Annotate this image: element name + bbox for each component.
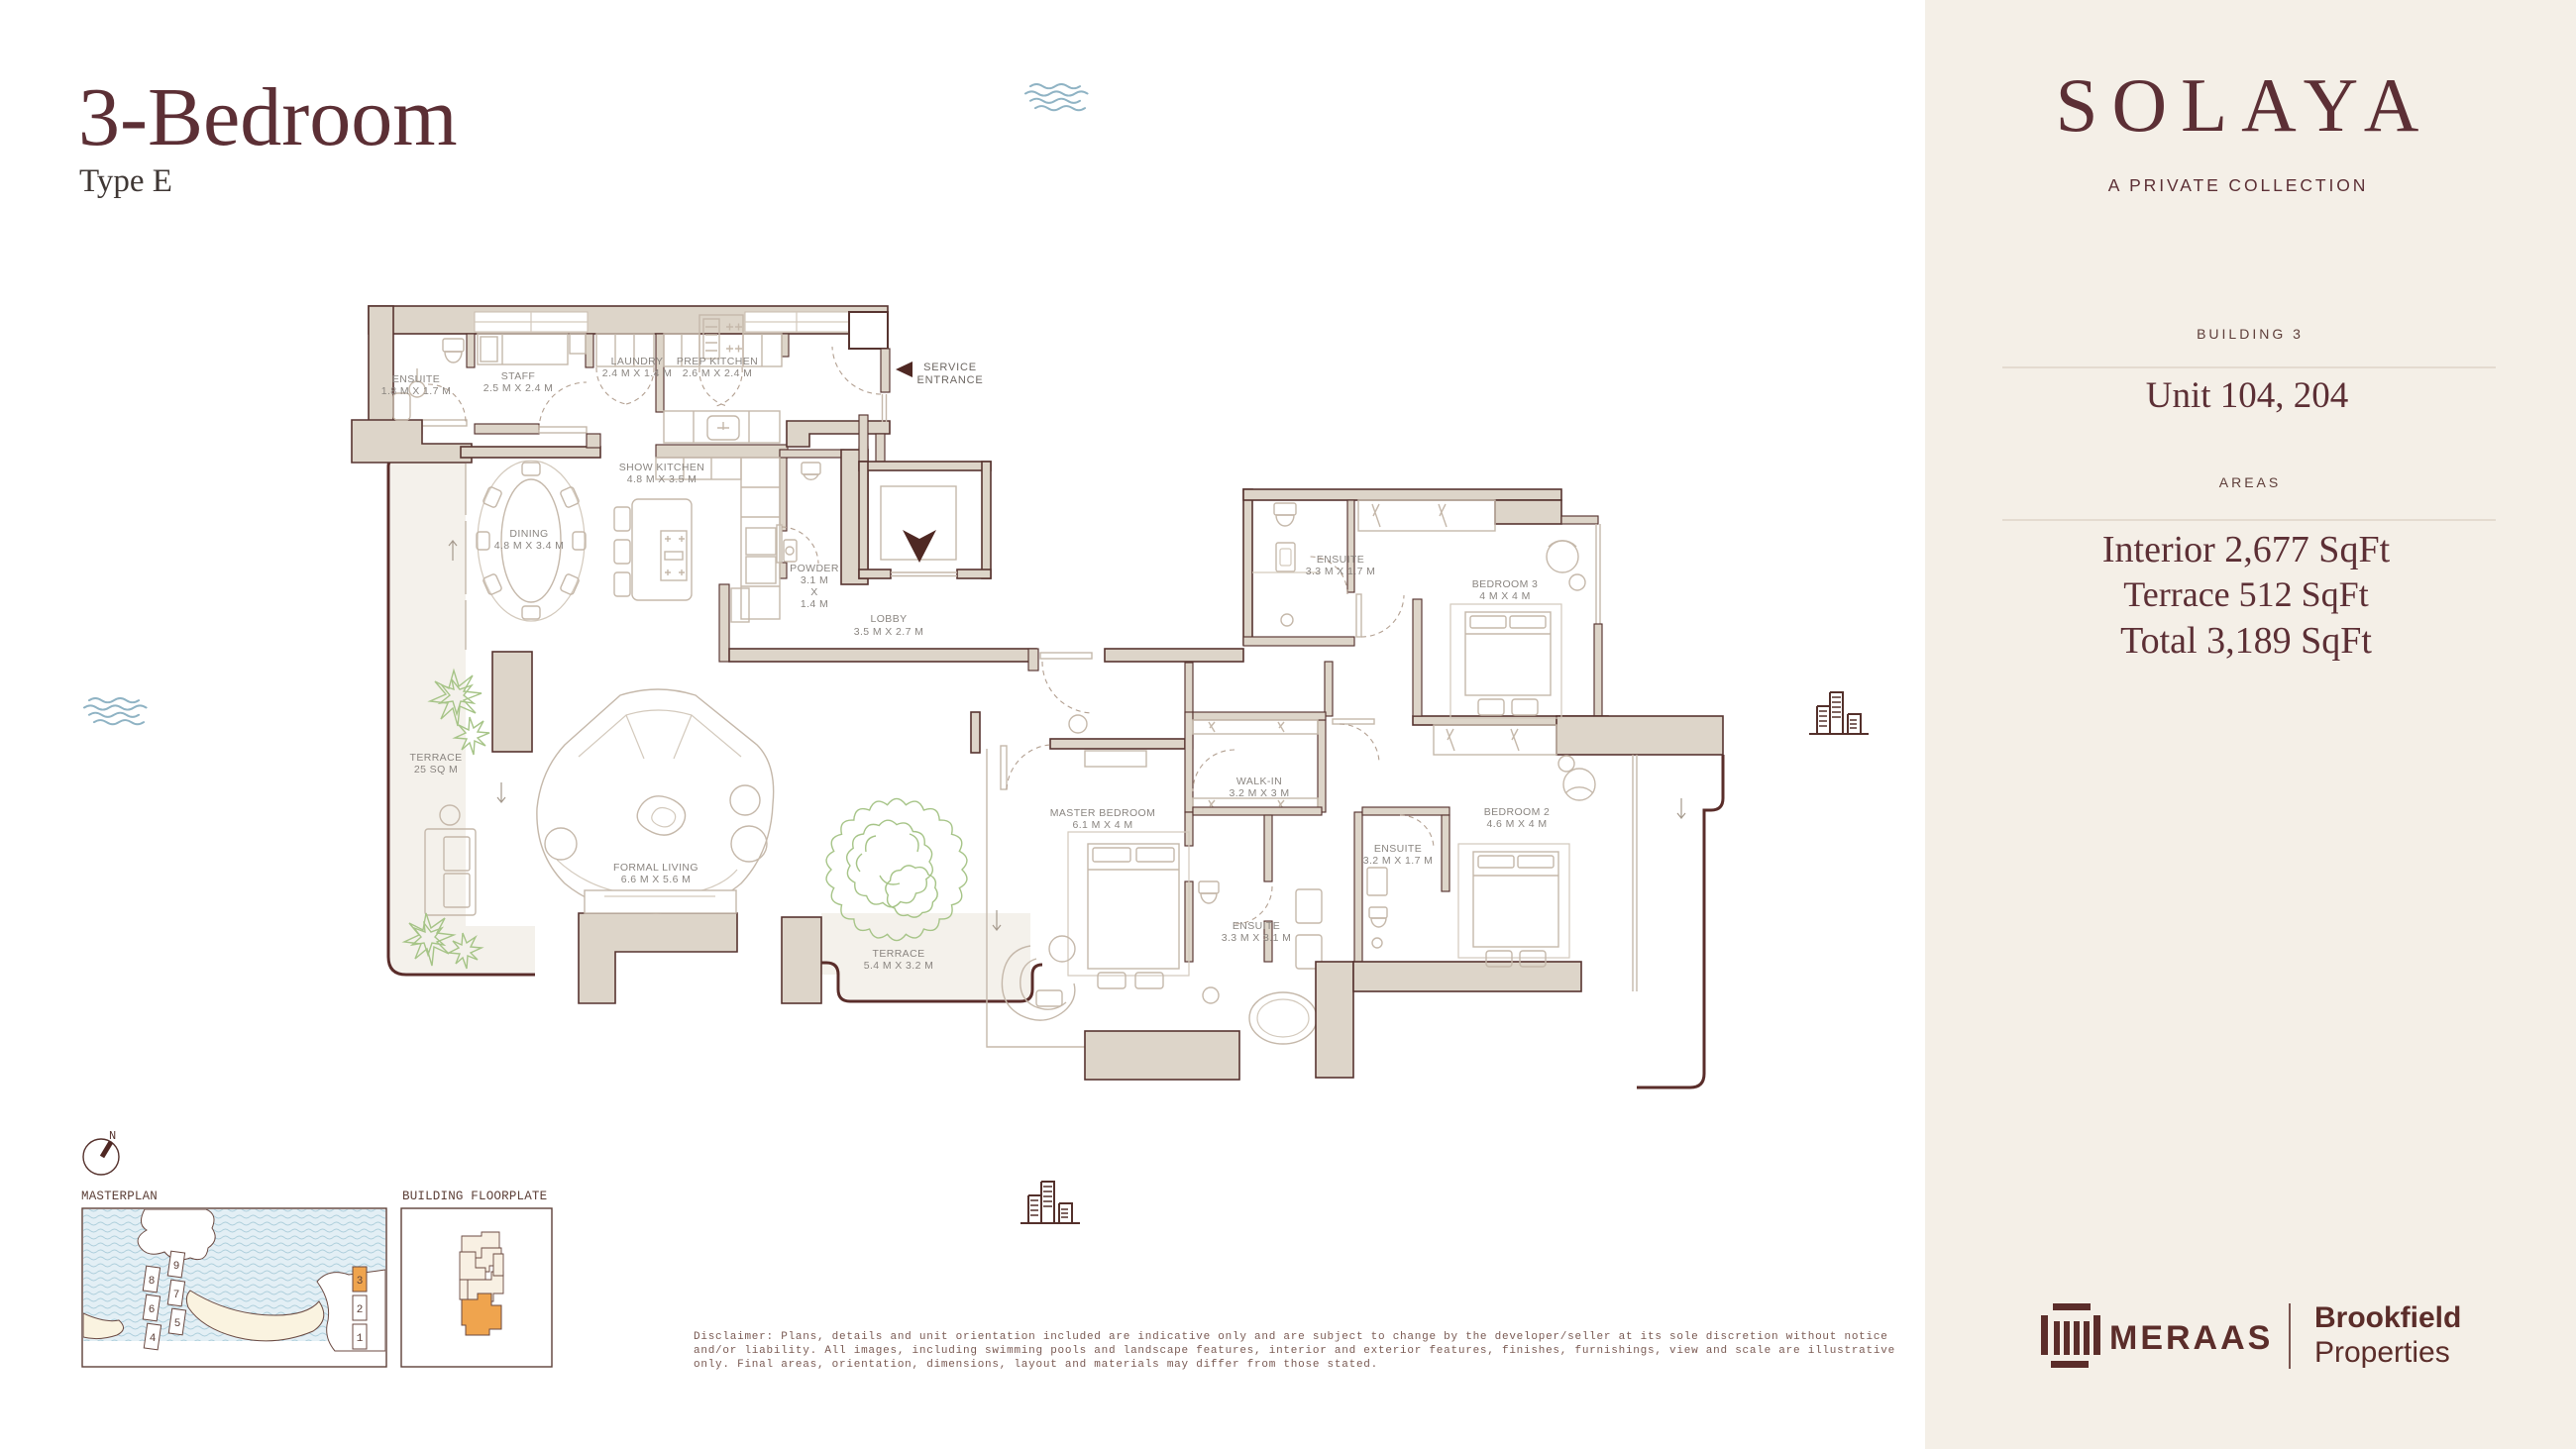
svg-text:2.5 M X 2.4 M: 2.5 M X 2.4 M — [483, 382, 554, 394]
svg-text:MERAAS: MERAAS — [2109, 1319, 2273, 1357]
svg-text:ENSUITE: ENSUITE — [1374, 843, 1422, 855]
svg-text:1.8 M X 1.7 M: 1.8 M X 1.7 M — [381, 385, 452, 397]
svg-text:Properties: Properties — [2314, 1336, 2450, 1369]
svg-text:3-Bedroom: 3-Bedroom — [78, 71, 458, 163]
svg-text:BEDROOM 2: BEDROOM 2 — [1484, 806, 1551, 818]
svg-text:DINING: DINING — [509, 528, 548, 540]
svg-text:3: 3 — [357, 1276, 364, 1288]
svg-text:3.1 M: 3.1 M — [801, 574, 828, 586]
svg-text:STAFF: STAFF — [501, 370, 535, 382]
svg-text:4 M X 4 M: 4 M X 4 M — [1479, 590, 1530, 602]
svg-text:2.6 M X 2.4 M: 2.6 M X 2.4 M — [683, 367, 753, 379]
svg-text:ENTRANCE: ENTRANCE — [917, 374, 984, 386]
svg-text:Terrace 512 SqFt: Terrace 512 SqFt — [2123, 574, 2368, 614]
svg-text:and/or liability. All images,: and/or liability. All images, including … — [694, 1345, 1895, 1357]
svg-text:4.8 M X 3.4 M: 4.8 M X 3.4 M — [494, 540, 565, 552]
svg-text:8: 8 — [149, 1276, 156, 1288]
svg-text:Brookfield: Brookfield — [2314, 1301, 2461, 1334]
svg-text:4.6 M X 4 M: 4.6 M X 4 M — [1486, 818, 1547, 830]
svg-text:3.3 M X 1.7 M: 3.3 M X 1.7 M — [1306, 566, 1376, 577]
svg-text:MASTER BEDROOM: MASTER BEDROOM — [1050, 807, 1156, 819]
svg-text:4.8 M X 3.5 M: 4.8 M X 3.5 M — [627, 473, 698, 485]
svg-text:3.2 M X 1.7 M: 3.2 M X 1.7 M — [1363, 855, 1434, 867]
svg-text:FORMAL LIVING: FORMAL LIVING — [613, 862, 698, 874]
svg-text:TERRACE: TERRACE — [873, 948, 925, 960]
svg-text:WALK-IN: WALK-IN — [1236, 776, 1282, 787]
svg-text:3.2 M X 3 M: 3.2 M X 3 M — [1229, 787, 1289, 799]
svg-text:2: 2 — [357, 1304, 364, 1316]
svg-text:6: 6 — [149, 1304, 156, 1316]
svg-text:7: 7 — [173, 1290, 180, 1301]
svg-text:Disclaimer: Plans, details and: Disclaimer: Plans, details and unit orie… — [694, 1331, 1888, 1343]
svg-text:1.4 M: 1.4 M — [801, 598, 828, 610]
svg-text:AREAS: AREAS — [2219, 474, 2281, 490]
svg-text:BUILDING FLOORPLATE: BUILDING FLOORPLATE — [402, 1190, 547, 1203]
svg-text:6.1 M X 4 M: 6.1 M X 4 M — [1072, 819, 1132, 831]
svg-text:N: N — [109, 1129, 116, 1143]
svg-text:Type E: Type E — [79, 163, 172, 199]
svg-text:9: 9 — [173, 1261, 180, 1273]
svg-text:3.5 M X 2.7 M: 3.5 M X 2.7 M — [854, 626, 924, 638]
svg-text:A PRIVATE COLLECTION: A PRIVATE COLLECTION — [2108, 175, 2369, 195]
svg-text:ENSUITE: ENSUITE — [392, 373, 440, 385]
svg-text:Unit 104, 204: Unit 104, 204 — [2146, 375, 2349, 416]
svg-text:Total 3,189 SqFt: Total 3,189 SqFt — [2120, 620, 2372, 662]
svg-text:ENSUITE: ENSUITE — [1317, 554, 1364, 566]
svg-text:3.3 M X 3.1 M: 3.3 M X 3.1 M — [1222, 932, 1292, 944]
svg-text:SOLAYA: SOLAYA — [2056, 62, 2433, 148]
svg-text:MASTERPLAN: MASTERPLAN — [81, 1190, 158, 1203]
svg-text:5.4 M X 3.2 M: 5.4 M X 3.2 M — [864, 960, 934, 972]
svg-text:SERVICE: SERVICE — [923, 362, 977, 373]
svg-text:Interior 2,677 SqFt: Interior 2,677 SqFt — [2102, 529, 2391, 570]
svg-text:ENSUITE: ENSUITE — [1233, 920, 1280, 932]
svg-text:BEDROOM 3: BEDROOM 3 — [1472, 578, 1539, 590]
svg-text:POWDER: POWDER — [790, 563, 839, 574]
svg-text:SHOW KITCHEN: SHOW KITCHEN — [619, 462, 704, 473]
svg-text:6.6 M X 5.6 M: 6.6 M X 5.6 M — [621, 874, 692, 885]
svg-text:BUILDING 3: BUILDING 3 — [2197, 326, 2304, 342]
svg-text:PREP KITCHEN: PREP KITCHEN — [677, 356, 758, 367]
svg-text:1: 1 — [357, 1333, 364, 1345]
svg-text:only. Final areas, orientation: only. Final areas, orientation, dimensio… — [694, 1359, 1378, 1371]
svg-text:TERRACE: TERRACE — [410, 752, 463, 764]
svg-text:X: X — [810, 586, 817, 598]
svg-text:LAUNDRY: LAUNDRY — [611, 356, 664, 367]
svg-text:5: 5 — [174, 1318, 181, 1330]
svg-text:LOBBY: LOBBY — [870, 613, 907, 625]
svg-text:2.4 M X 1.4 M: 2.4 M X 1.4 M — [602, 367, 673, 379]
svg-text:4: 4 — [150, 1333, 157, 1345]
svg-text:25 SQ M: 25 SQ M — [414, 764, 458, 776]
